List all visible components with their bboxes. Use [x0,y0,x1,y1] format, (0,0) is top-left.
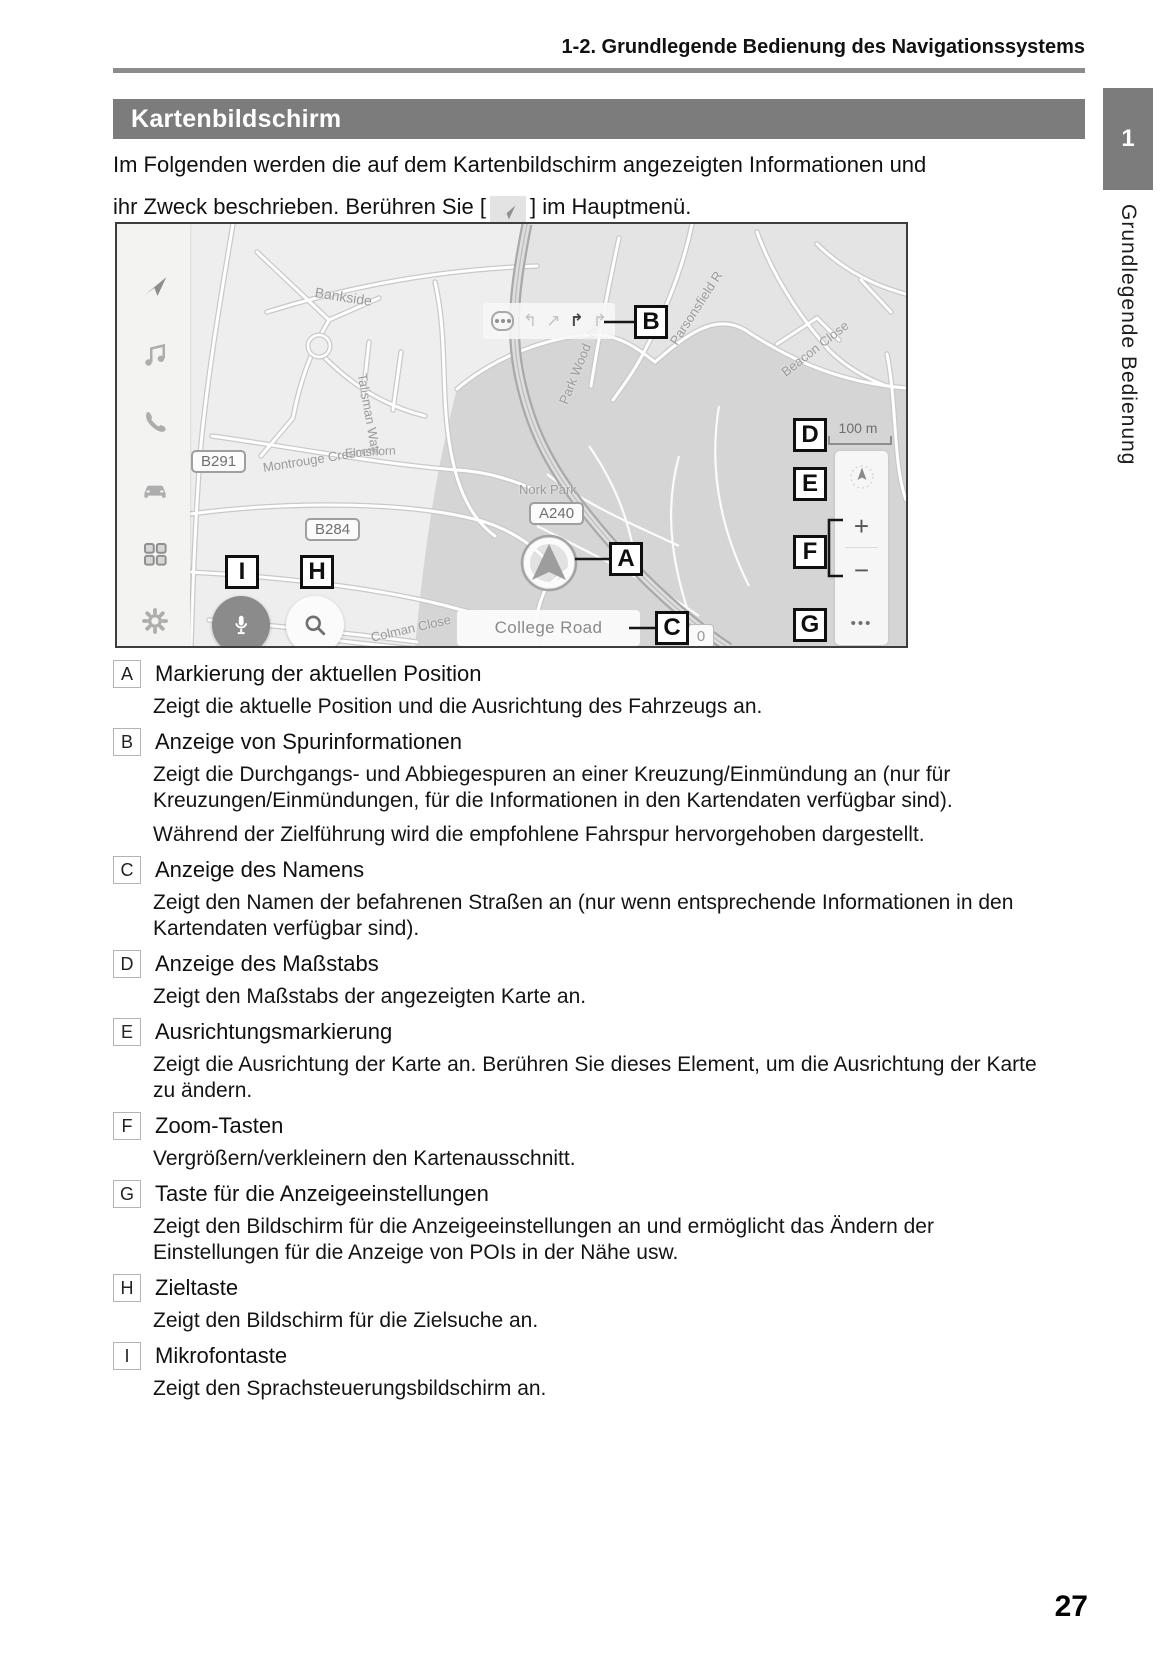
legend-term: Anzeige des Namens [155,857,364,883]
legend-description: Zeigt den Sprachsteuerungsbildschirm an. [153,1376,1063,1402]
legend-description: Zeigt den Bildschirm für die Anzeigeeins… [153,1214,1063,1266]
map-callout-i: I [225,555,259,589]
legend-term: Zoom-Tasten [155,1113,283,1139]
header-rule [113,68,1085,73]
map-callout-b: B [634,305,668,339]
section-title-bar: Kartenbildschirm [113,99,1085,139]
legend-letter-box: B [113,728,141,756]
map-callout-f: F [793,535,827,569]
legend-term: Taste für die Anzeigeeinstellungen [155,1181,489,1207]
legend-letter-box: G [113,1180,141,1208]
legend-term-row: DAnzeige des Maßstabs [113,950,1063,978]
legend-description: Zeigt den Namen der befahrenen Straßen a… [153,890,1063,942]
legend-letter-box: F [113,1112,141,1140]
legend-description: Vergrößern/verkleinern den Kartenausschn… [153,1146,1063,1172]
legend-description: Zeigt die aktuelle Position und die Ausr… [153,694,1063,720]
legend-description: Während der Zielführung wird die empfohl… [153,822,1063,848]
legend-term-row: AMarkierung der aktuellen Position [113,660,1063,688]
map-callout-a: A [609,542,643,576]
map-callout-h: H [300,555,334,589]
legend-letter-box: A [113,660,141,688]
running-head: 1-2. Grundlegende Bedienung des Navigati… [113,36,1085,59]
legend-description: Zeigt die Ausrichtung der Karte an. Berü… [153,1052,1063,1104]
legend-term-row: GTaste für die Anzeigeeinstellungen [113,1180,1063,1208]
intro-paragraph: Im Folgenden werden die auf dem Kartenbi… [113,144,1043,228]
intro-line1: Im Folgenden werden die auf dem Kartenbi… [113,144,1043,186]
map-callout-d: D [793,418,827,452]
chapter-title-vertical: Grundlegende Bedienung [1116,204,1140,465]
legend-term: Anzeige von Spurinformationen [155,729,462,755]
legend-term-row: CAnzeige des Namens [113,856,1063,884]
legend-term-row: IMikrofontaste [113,1342,1063,1370]
legend-letter-box: E [113,1018,141,1046]
legend-term-row: EAusrichtungsmarkierung [113,1018,1063,1046]
legend-letter-box: C [113,856,141,884]
page-number: 27 [1008,1590,1088,1624]
legend-list: AMarkierung der aktuellen PositionZeigt … [113,652,1063,1410]
map-screenshot: BanksideTalisman WayMontrouge CrescentEl… [115,222,908,648]
legend-term-row: HZieltaste [113,1274,1063,1302]
legend-description: Zeigt die Durchgangs- und Abbiegespuren … [153,762,1063,814]
legend-term: Ausrichtungsmarkierung [155,1019,392,1045]
legend-term-row: FZoom-Tasten [113,1112,1063,1140]
legend-description: Zeigt den Bildschirm für die Zielsuche a… [153,1308,1063,1334]
map-callout-e: E [793,467,827,501]
chapter-tab: 1 [1103,88,1153,190]
section-title: Kartenbildschirm [113,105,341,134]
legend-term: Zieltaste [155,1275,238,1301]
legend-letter-box: H [113,1274,141,1302]
legend-term-row: BAnzeige von Spurinformationen [113,728,1063,756]
legend-term: Markierung der aktuellen Position [155,661,482,687]
legend-letter-box: I [113,1342,141,1370]
legend-term: Anzeige des Maßstabs [155,951,379,977]
legend-letter-box: D [113,950,141,978]
legend-description: Zeigt den Maßstabs der angezeigten Karte… [153,984,1063,1010]
manual-page: 1-2. Grundlegende Bedienung des Navigati… [0,0,1165,1653]
map-callout-g: G [793,608,827,642]
legend-term: Mikrofontaste [155,1343,287,1369]
map-callout-c: C [655,611,689,645]
